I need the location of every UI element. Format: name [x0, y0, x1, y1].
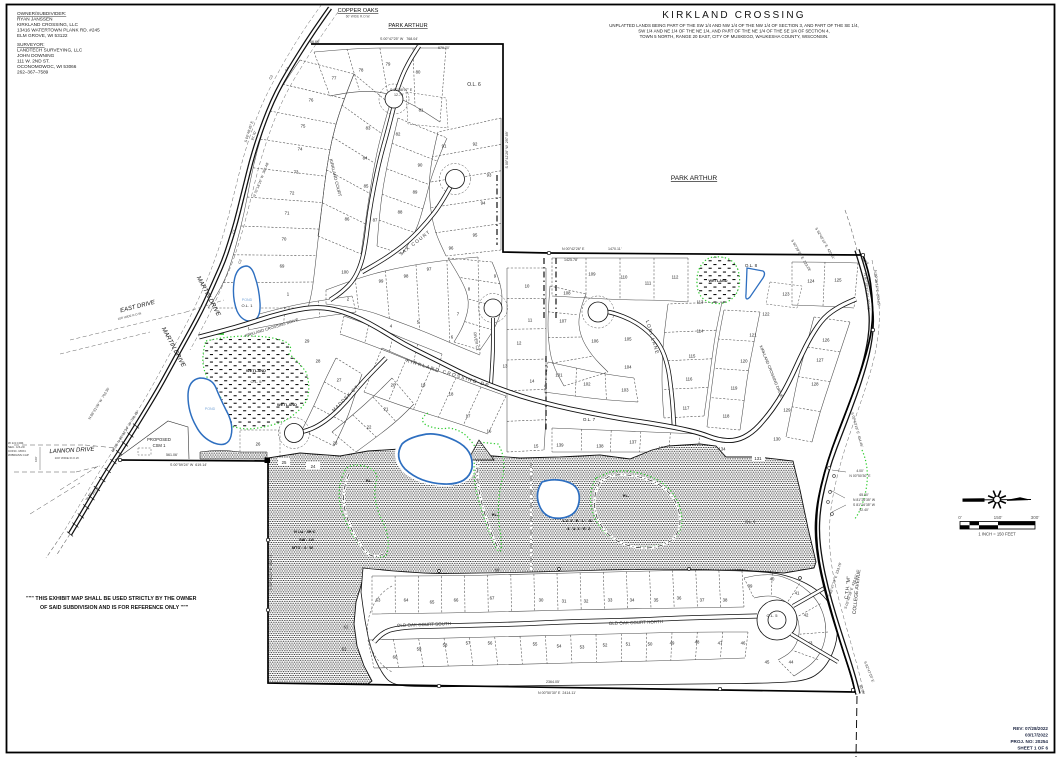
svg-text:94: 94 — [481, 201, 486, 206]
svg-text:POND: POND — [205, 407, 216, 411]
svg-text:40: 40 — [770, 577, 775, 582]
svg-text:561.06’: 561.06’ — [166, 453, 178, 457]
svg-text:27: 27 — [337, 378, 342, 383]
svg-text:15: 15 — [534, 444, 539, 449]
svg-text:121: 121 — [749, 333, 757, 338]
svg-text:21: 21 — [384, 407, 389, 412]
svg-text:119: 119 — [731, 386, 738, 391]
svg-text:76: 76 — [309, 98, 314, 103]
svg-text:34: 34 — [630, 598, 635, 603]
svg-text:98: 98 — [404, 274, 409, 279]
svg-text:122: 122 — [762, 312, 770, 317]
svg-text:N 88°36’24” E 881.74’: N 88°36’24” E 881.74’ — [269, 554, 273, 590]
svg-text:115: 115 — [689, 354, 696, 359]
svg-text:22: 22 — [367, 425, 372, 430]
svg-text:55: 55 — [533, 642, 538, 647]
svg-text:18: 18 — [449, 392, 454, 397]
svg-text:110: 110 — [621, 275, 628, 280]
svg-text:88: 88 — [398, 210, 403, 215]
svg-text:79: 79 — [386, 62, 391, 67]
svg-text:89: 89 — [413, 190, 418, 195]
svg-text:62: 62 — [344, 625, 349, 630]
svg-text:101: 101 — [555, 373, 563, 378]
svg-text:19: 19 — [421, 383, 426, 388]
svg-text:29: 29 — [305, 339, 310, 344]
svg-text:87: 87 — [373, 218, 378, 223]
svg-text:108: 108 — [563, 291, 571, 296]
svg-text:83: 83 — [366, 126, 371, 131]
svg-text:COPPER OAKS: COPPER OAKS — [338, 8, 379, 14]
svg-text:60: 60 — [393, 655, 398, 660]
svg-text:36: 36 — [677, 596, 682, 601]
svg-text:N 00°42’26” E: N 00°42’26” E — [562, 247, 585, 251]
svg-text:14: 14 — [530, 379, 535, 384]
svg-text:N 00°50’30” E 2414.11’: N 00°50’30” E 2414.11’ — [538, 691, 576, 695]
svg-text:116: 116 — [686, 377, 693, 382]
svg-text:KIRKLAND CROSSING DRIVE: KIRKLAND CROSSING DRIVE — [759, 345, 785, 399]
svg-text:S 00°47’25” W 768.04’: S 00°47’25” W 768.04’ — [380, 37, 418, 41]
svg-text:42: 42 — [804, 613, 809, 618]
svg-text:95: 95 — [473, 233, 478, 238]
svg-text:EL-: EL- — [492, 512, 499, 517]
svg-text:O.L. 7: O.L. 7 — [583, 417, 596, 422]
svg-text:PROPOSED: PROPOSED — [147, 437, 171, 442]
svg-text:96: 96 — [449, 246, 454, 251]
svg-text:LORI LANE: LORI LANE — [644, 320, 660, 356]
svg-text:46: 46 — [741, 641, 746, 646]
svg-text:7: 7 — [457, 312, 460, 317]
svg-text:S 82°47’19” E: S 82°47’19” E — [863, 661, 875, 684]
svg-text:75: 75 — [301, 124, 306, 129]
svg-text:131: 131 — [754, 456, 762, 461]
svg-text:1: 1 — [287, 292, 290, 297]
svg-text:N 1/4 · SE·C: N 1/4 · SE·C — [294, 530, 316, 534]
svg-text:39: 39 — [748, 584, 753, 589]
svg-text:106: 106 — [591, 339, 599, 344]
svg-text:12.79’: 12.79’ — [394, 93, 404, 97]
svg-text:8: 8 — [468, 287, 471, 292]
svg-text:127: 127 — [816, 358, 824, 363]
svg-text:77: 77 — [332, 76, 337, 81]
svg-text:WETLAND: WETLAND — [277, 402, 297, 407]
svg-text:125: 125 — [834, 278, 842, 283]
svg-text:PROJ. NO: 20254: PROJ. NO: 20254 — [1010, 739, 1048, 744]
svg-text:C3: C3 — [268, 74, 274, 80]
svg-text:81: 81 — [419, 108, 424, 113]
svg-text:OWNER/SUBDIVIDER:: OWNER/SUBDIVIDER: — [17, 11, 66, 16]
svg-text:CSM 1: CSM 1 — [153, 443, 166, 448]
svg-text:4.00’: 4.00’ — [856, 469, 864, 473]
svg-text:32: 32 — [584, 599, 589, 604]
svg-text:38: 38 — [723, 598, 728, 603]
svg-text:109: 109 — [588, 272, 596, 277]
svg-text:54: 54 — [557, 644, 562, 649]
svg-text:73: 73 — [294, 170, 299, 175]
svg-text:SHEET 1 OF 6: SHEET 1 OF 6 — [1017, 746, 1048, 751]
svg-text:REV: 07/28/2022: REV: 07/28/2022 — [1013, 726, 1048, 731]
svg-text:SW · 1/4: SW · 1/4 — [299, 538, 315, 542]
svg-text:10: 10 — [525, 284, 530, 289]
svg-text:139: 139 — [556, 443, 564, 448]
svg-text:103: 103 — [621, 388, 629, 393]
svg-text:37: 37 — [700, 598, 705, 603]
svg-text:150’: 150’ — [994, 515, 1003, 520]
svg-text:85: 85 — [364, 184, 369, 189]
svg-text:LANNON DRIVE: LANNON DRIVE — [49, 447, 95, 455]
svg-text:16: 16 — [487, 429, 492, 434]
svg-text:2: 2 — [347, 297, 350, 302]
svg-text:104: 104 — [624, 365, 632, 370]
svg-text:26: 26 — [256, 442, 261, 447]
svg-text:O.L. 9: O.L. 9 — [745, 520, 755, 524]
svg-text:91: 91 — [442, 144, 447, 149]
svg-text:1 INCH = 150 FEET: 1 INCH = 150 FEET — [978, 532, 1016, 537]
svg-text:58: 58 — [443, 643, 448, 648]
svg-text:129: 129 — [783, 408, 791, 413]
svg-text:4: 4 — [390, 324, 393, 329]
svg-text:117: 117 — [683, 406, 690, 411]
svg-text:SURVEYOR:: SURVEYOR: — [17, 42, 45, 47]
svg-text:138: 138 — [596, 444, 604, 449]
svg-text:WETLAND: WETLAND — [709, 279, 728, 283]
svg-text:118: 118 — [723, 414, 730, 419]
svg-text:S 60°29’38” E 223.28’: S 60°29’38” E 223.28’ — [790, 239, 812, 272]
svg-text:JOHN DOWNING: JOHN DOWNING — [17, 53, 55, 58]
svg-text:44: 44 — [789, 660, 794, 665]
svg-text:PARK ARTHUR: PARK ARTHUR — [388, 23, 427, 29]
svg-text:93: 93 — [487, 173, 492, 178]
svg-text:41: 41 — [795, 591, 800, 596]
svg-text:23: 23 — [333, 441, 338, 446]
svg-text:57: 57 — [466, 641, 471, 646]
svg-text:EL-: EL- — [623, 493, 630, 498]
svg-text:S 81°16’35” W: S 81°16’35” W — [853, 503, 876, 507]
svg-text:S 00°59’24” W 619.14’: S 00°59’24” W 619.14’ — [170, 463, 207, 467]
svg-text:100’: 100’ — [34, 456, 38, 462]
svg-text:O.L. 6: O.L. 6 — [467, 82, 481, 88]
svg-text:S 00°42’26” W 297.69’: S 00°42’26” W 297.69’ — [505, 131, 509, 168]
svg-text:TOWN 5 NORTH, RANGE 20 EAST, C: TOWN 5 NORTH, RANGE 20 EAST, CITY OF MUS… — [640, 34, 829, 39]
svg-text:20: 20 — [391, 383, 396, 388]
svg-text:LANDTECH SURVEYING, LLC: LANDTECH SURVEYING, LLC — [17, 48, 83, 53]
svg-text:W/BRASS CAP: W/BRASS CAP — [8, 453, 29, 457]
svg-text:114: 114 — [697, 329, 704, 334]
svg-text:UNPLATTED LANDS BEING PART OF: UNPLATTED LANDS BEING PART OF THE SW 1/4… — [609, 23, 859, 28]
svg-text:O.L. 5: O.L. 5 — [767, 613, 779, 618]
svg-text:45: 45 — [765, 660, 770, 665]
svg-text:86: 86 — [345, 217, 350, 222]
svg-text:N 81°26’35” W: N 81°26’35” W — [853, 498, 876, 502]
svg-text:WETLAND: WETLAND — [246, 368, 266, 373]
svg-text:68: 68 — [495, 568, 500, 573]
svg-text:C2: C2 — [237, 259, 242, 265]
svg-text:1425.78’: 1425.78’ — [564, 258, 578, 262]
svg-text:123: 123 — [782, 292, 790, 297]
svg-text:100: 100 — [341, 270, 349, 275]
svg-text:120: 120 — [740, 359, 748, 364]
svg-text:1470.11’: 1470.11’ — [608, 247, 622, 251]
svg-text:112: 112 — [672, 275, 679, 280]
svg-text:78: 78 — [359, 68, 364, 73]
svg-text:N 70°18’16” W 365.48’: N 70°18’16” W 365.48’ — [252, 161, 270, 197]
svg-text:72: 72 — [290, 191, 295, 196]
svg-text:30: 30 — [539, 598, 544, 603]
svg-text:RYAN JANSSEN: RYAN JANSSEN — [17, 17, 53, 22]
svg-text:126: 126 — [822, 338, 830, 343]
svg-text:102: 102 — [583, 382, 591, 387]
svg-text:66.60’: 66.60’ — [310, 40, 320, 44]
svg-text:49: 49 — [670, 641, 675, 646]
svg-text:59: 59 — [417, 647, 422, 652]
svg-text:60’ WIDE R.O.W.: 60’ WIDE R.O.W. — [346, 15, 371, 19]
svg-text:97: 97 — [427, 267, 432, 272]
svg-text:92.40’: 92.40’ — [859, 508, 868, 512]
svg-text:69: 69 — [280, 264, 285, 269]
svg-text:64: 64 — [404, 598, 409, 603]
svg-text:90: 90 — [418, 163, 423, 168]
svg-text:””” THIS EXHIBIT MAP SHALL BE: ””” THIS EXHIBIT MAP SHALL BE USED STRIC… — [26, 596, 197, 602]
svg-text:6: 6 — [451, 335, 454, 340]
svg-text:33: 33 — [608, 598, 613, 603]
svg-text:53: 53 — [580, 645, 585, 650]
svg-text:N 86°31’09” W 703.30’: N 86°31’09” W 703.30’ — [88, 386, 111, 420]
svg-text:O.L. 8: O.L. 8 — [745, 263, 758, 268]
svg-text:N 00°50’30” E: N 00°50’30” E — [849, 474, 871, 478]
svg-text:80: 80 — [416, 70, 421, 75]
svg-text:PARK ARTHUR: PARK ARTHUR — [671, 175, 718, 182]
svg-text:113: 113 — [697, 300, 704, 305]
svg-text:OF SAID SUBDIVISION AND IS FOR: OF SAID SUBDIVISION AND IS FOR REFERENCE… — [40, 605, 189, 611]
svg-text:31: 31 — [562, 599, 567, 604]
svg-text:65.90’: 65.90’ — [859, 493, 868, 497]
svg-text:KIRKLAND CROSSING DR.: KIRKLAND CROSSING DR. — [405, 358, 493, 390]
svg-text:67: 67 — [490, 596, 495, 601]
svg-text:KIRKLAND CROSSING: KIRKLAND CROSSING — [662, 10, 806, 21]
svg-text:MADDEX CT.: MADDEX CT. — [331, 383, 361, 413]
svg-text:128: 128 — [811, 382, 819, 387]
svg-text:24: 24 — [311, 464, 316, 469]
svg-text:111: 111 — [645, 281, 652, 286]
svg-text:71: 71 — [285, 211, 290, 216]
svg-text:S 30°58’57” E: S 30°58’57” E — [390, 88, 413, 92]
svg-text:48: 48 — [695, 640, 700, 645]
svg-text:61: 61 — [342, 647, 347, 652]
svg-text:O.L. 1: O.L. 1 — [242, 303, 254, 308]
svg-text:28: 28 — [316, 359, 321, 364]
svg-text:·L4· 4· ·E· ·L·· ·A·: ·L4· 4· ·E· ·L·· ·A· — [562, 519, 593, 523]
svg-text:N 89°36’11” E 292.25’: N 89°36’11” E 292.25’ — [873, 270, 881, 306]
svg-text:POND: POND — [242, 298, 253, 302]
svg-text:O.L. 5: O.L. 5 — [251, 379, 263, 384]
svg-text:100’ WIDE R.O.W.: 100’ WIDE R.O.W. — [55, 456, 80, 460]
svg-text:ELM GROVE, WI 53122: ELM GROVE, WI 53122 — [17, 33, 68, 38]
svg-text:56: 56 — [488, 641, 493, 646]
svg-text:300’: 300’ — [1031, 515, 1040, 520]
svg-text:·4· ·1· 4 ··E· 2·: ·4· ·1· 4 ··E· 2· — [566, 527, 591, 531]
svg-text:2364.05’: 2364.05’ — [546, 680, 560, 684]
svg-text:105: 105 — [624, 337, 632, 342]
svg-text:51: 51 — [626, 642, 631, 647]
svg-text:0’: 0’ — [958, 515, 962, 520]
svg-text:25: 25 — [282, 460, 287, 465]
svg-text:82: 82 — [396, 132, 401, 137]
svg-text:107: 107 — [559, 319, 567, 324]
svg-text:124: 124 — [807, 279, 815, 284]
svg-text:03/17/2022: 03/17/2022 — [1025, 733, 1048, 738]
svg-text:92: 92 — [473, 142, 478, 147]
svg-text:63: 63 — [376, 598, 381, 603]
svg-text:13416 WATERTOWN PLANK RD. #245: 13416 WATERTOWN PLANK RD. #245 — [17, 28, 100, 33]
svg-text:9: 9 — [494, 274, 497, 279]
svg-text:35: 35 — [654, 598, 659, 603]
svg-text:13: 13 — [503, 364, 508, 369]
svg-text:70: 70 — [282, 237, 287, 242]
svg-text:EL-: EL- — [366, 478, 373, 483]
svg-text:17: 17 — [466, 414, 471, 419]
svg-text:130: 130 — [773, 437, 781, 442]
svg-text:262–367–7589: 262–367–7589 — [17, 70, 49, 75]
svg-text:84: 84 — [363, 156, 368, 161]
svg-text:50: 50 — [648, 642, 653, 647]
svg-text:111 W. 2ND ST.: 111 W. 2ND ST. — [17, 59, 50, 64]
svg-text:MTG · 4 · W: MTG · 4 · W — [292, 546, 313, 550]
svg-text:52: 52 — [603, 643, 608, 648]
svg-text:66: 66 — [454, 598, 459, 603]
svg-text:137: 137 — [629, 440, 637, 445]
svg-text:74: 74 — [298, 147, 303, 152]
svg-text:12: 12 — [517, 341, 522, 346]
svg-text:679.20’: 679.20’ — [438, 46, 450, 50]
svg-text:11: 11 — [528, 318, 533, 323]
svg-text:99: 99 — [379, 279, 384, 284]
svg-text:S 02°43’19” E 454.46’: S 02°43’19” E 454.46’ — [850, 412, 864, 448]
svg-text:65: 65 — [430, 600, 435, 605]
svg-text:SW 1/4 AND NE 1/4 OF THE NE 1: SW 1/4 AND NE 1/4 OF THE NE 1/4, AND PAR… — [638, 28, 830, 33]
svg-text:47: 47 — [718, 641, 723, 646]
svg-text:OCONOMOWOC, WI 53066: OCONOMOWOC, WI 53066 — [17, 64, 77, 69]
svg-text:S 82°47’19” E 233.78’: S 82°47’19” E 233.78’ — [828, 562, 843, 598]
svg-text:KIRKLAND CROSSING, LLC: KIRKLAND CROSSING, LLC — [17, 22, 79, 27]
